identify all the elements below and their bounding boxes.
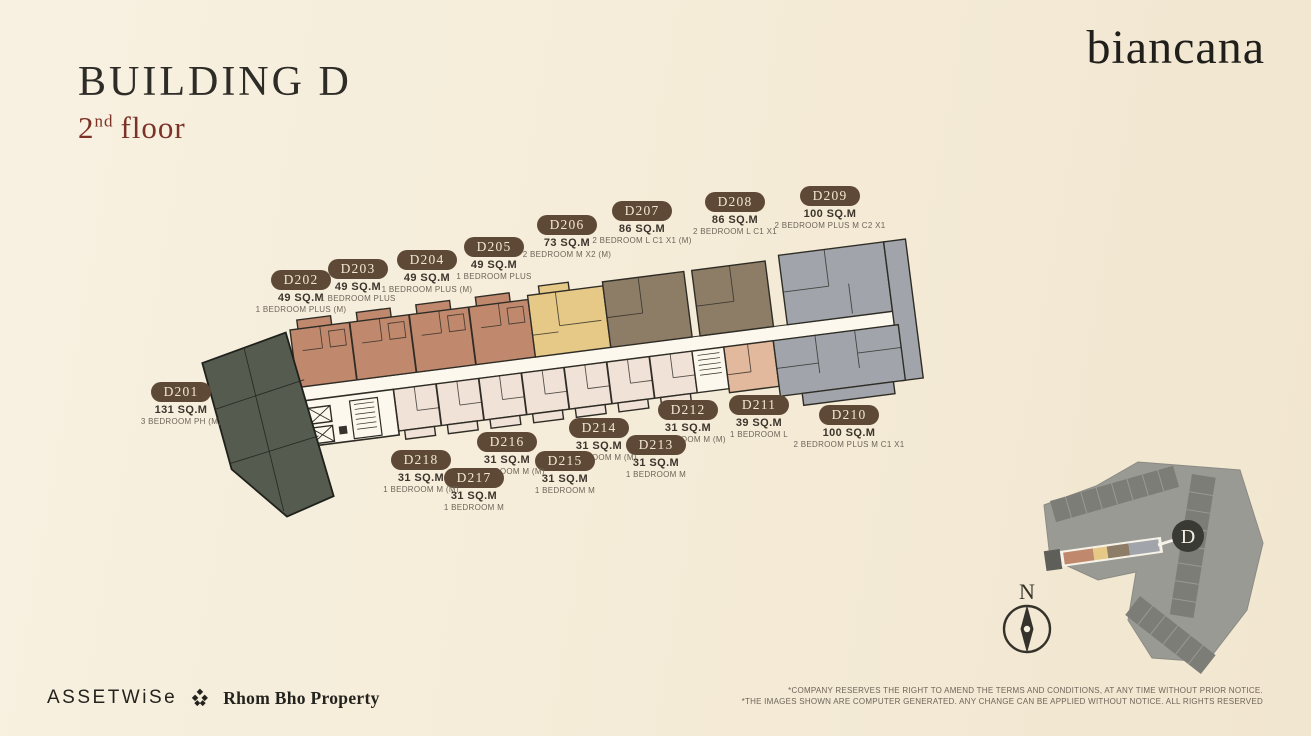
- unit-area: 100 SQ.M: [750, 208, 910, 220]
- compass-needle-pivot: [1024, 626, 1030, 632]
- unit-area: 131 SQ.M: [101, 404, 261, 416]
- unit-type: 2 BEDROOM M X2 (M): [487, 250, 647, 259]
- building-d-badge-label: D: [1181, 526, 1195, 548]
- unit-id-badge: D216: [477, 432, 538, 452]
- unit-type: 3 BEDROOM PH (M): [101, 417, 261, 426]
- unit-type: 1 BEDROOM PLUS (M): [347, 285, 507, 294]
- unit-id-badge: D212: [658, 400, 719, 420]
- unit-id-badge: D201: [151, 382, 212, 402]
- unit-type: 2 BEDROOM PLUS M C2 X1: [750, 221, 910, 230]
- site-plan-blob: D: [1044, 462, 1263, 674]
- unit-id-badge: D209: [800, 186, 861, 206]
- rhombho-diamond-icon: [190, 688, 210, 708]
- disclaimer: *COMPANY RESERVES THE RIGHT TO AMEND THE…: [742, 685, 1263, 707]
- footer-logos: ASSETWiSe Rhom Bho Property: [47, 687, 380, 709]
- unit-area: 49 SQ.M: [414, 259, 574, 271]
- assetwise-logo: ASSETWiSe: [47, 687, 177, 709]
- compass-north-label: N: [1019, 579, 1035, 604]
- rhombho-logo: Rhom Bho Property: [223, 688, 379, 709]
- disclaimer-line-1: *COMPANY RESERVES THE RIGHT TO AMEND THE…: [742, 685, 1263, 696]
- unit-type: 2 BEDROOM PLUS M C1 X1: [769, 440, 929, 449]
- disclaimer-line-2: *THE IMAGES SHOWN ARE COMPUTER GENERATED…: [742, 696, 1263, 707]
- unit-area: 31 SQ.M: [341, 472, 501, 484]
- unit-label-d201: D201 131 SQ.M 3 BEDROOM PH (M): [101, 382, 261, 426]
- unit-type: 1 BEDROOM PLUS: [278, 294, 438, 303]
- unit-type: 1 BEDROOM M (M): [341, 485, 501, 494]
- unit-id-badge: D218: [391, 450, 452, 470]
- site-key-map: D N: [0, 0, 1311, 736]
- unit-type: 1 BEDROOM PLUS (M): [221, 305, 381, 314]
- unit-label-d209: D209 100 SQ.M 2 BEDROOM PLUS M C2 X1: [750, 186, 910, 230]
- unit-type: 2 BEDROOM L C1 X1 (M): [562, 236, 722, 245]
- unit-label-d218: D218 31 SQ.M 1 BEDROOM M (M): [341, 450, 501, 494]
- unit-type: 1 BEDROOM M: [394, 503, 554, 512]
- unit-type: 1 BEDROOM PLUS: [414, 272, 574, 281]
- compass: N: [1004, 579, 1050, 653]
